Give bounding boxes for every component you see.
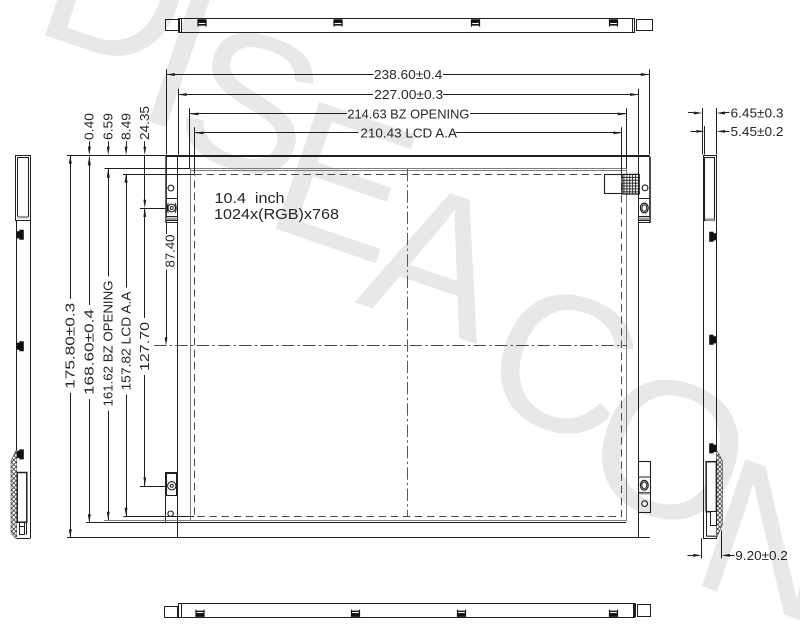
svg-text:175.80±0.3: 175.80±0.3 — [63, 303, 78, 389]
svg-text:6.45±0.3: 6.45±0.3 — [731, 106, 784, 121]
svg-text:168.60±0.4: 168.60±0.4 — [82, 309, 97, 395]
svg-text:0.40: 0.40 — [82, 113, 97, 140]
svg-text:1024x(RGB)x768: 1024x(RGB)x768 — [214, 206, 339, 223]
svg-text:214.63 BZ OPENING: 214.63 BZ OPENING — [347, 107, 469, 122]
svg-text:227.00±0.3: 227.00±0.3 — [374, 87, 443, 102]
svg-text:9.20±0.2: 9.20±0.2 — [735, 548, 788, 563]
svg-text:87.40: 87.40 — [163, 235, 178, 268]
svg-text:24.35: 24.35 — [137, 106, 152, 140]
svg-text:5.45±0.2: 5.45±0.2 — [731, 124, 784, 139]
svg-text:6.59: 6.59 — [101, 113, 116, 140]
svg-text:161.62 BZ OPENING: 161.62 BZ OPENING — [101, 281, 116, 407]
svg-text:127.70: 127.70 — [137, 322, 152, 371]
svg-text:210.43 LCD A.A: 210.43 LCD A.A — [360, 126, 457, 141]
svg-text:157.82 LCD A.A: 157.82 LCD A.A — [119, 291, 134, 390]
svg-text:8.49: 8.49 — [119, 113, 134, 140]
svg-text:238.60±0.4: 238.60±0.4 — [374, 67, 443, 82]
svg-text:10.4 inch: 10.4 inch — [215, 190, 285, 207]
